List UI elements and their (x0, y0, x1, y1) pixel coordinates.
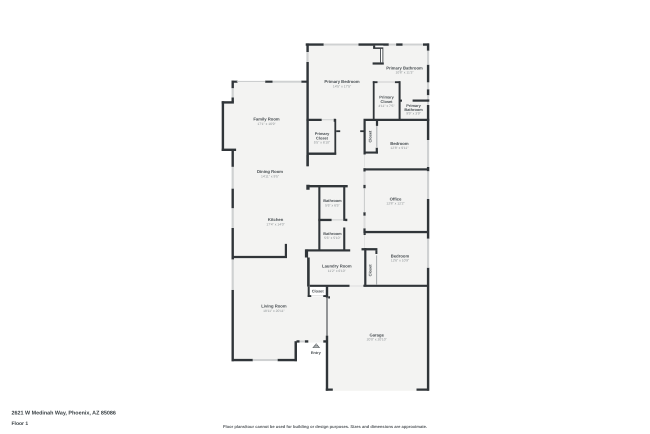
svg-text:18'11" x 20'11": 18'11" x 20'11" (263, 309, 285, 313)
svg-text:4'11" x 7'5": 4'11" x 7'5" (378, 104, 395, 108)
svg-text:2621 W Medinah Way, Phoenix, A: 2621 W Medinah Way, Phoenix, AZ 85086 (12, 410, 116, 416)
svg-text:Primary Bedroom: Primary Bedroom (324, 79, 359, 84)
svg-text:Entry: Entry (311, 350, 322, 355)
svg-text:12'8" x 9'11": 12'8" x 9'11" (390, 146, 409, 150)
svg-text:Laundry Room: Laundry Room (322, 263, 352, 268)
svg-text:5'5" x 6'10": 5'5" x 6'10" (314, 141, 331, 145)
svg-text:Floor 1: Floor 1 (12, 421, 29, 427)
svg-text:10'8" x 11'3": 10'8" x 11'3" (395, 71, 414, 75)
svg-text:11'2" x 6'10": 11'2" x 6'10" (328, 269, 347, 273)
svg-text:Living Room: Living Room (261, 303, 287, 308)
svg-text:9'9" x 3'9": 9'9" x 3'9" (406, 112, 421, 116)
svg-text:14'11" x 9'5": 14'11" x 9'5" (261, 175, 280, 179)
svg-text:Closet: Closet (367, 130, 372, 143)
svg-text:14'5" x 17'5": 14'5" x 17'5" (333, 85, 352, 89)
svg-text:5'6" x 6'5": 5'6" x 6'5" (325, 203, 340, 207)
svg-text:17'1" x 16'9": 17'1" x 16'9" (257, 122, 276, 126)
svg-text:Floor plans/tour cannot be use: Floor plans/tour cannot be used for buil… (223, 424, 427, 429)
svg-text:Family Room: Family Room (253, 117, 280, 122)
svg-text:Closet: Closet (367, 264, 372, 277)
svg-text:20'0" x 20'10": 20'0" x 20'10" (367, 338, 388, 342)
svg-text:12'8" x 12'2": 12'8" x 12'2" (386, 202, 405, 206)
svg-text:Closet: Closet (312, 288, 325, 293)
svg-text:Dining Room: Dining Room (257, 169, 283, 174)
svg-text:17'4" x 14'0": 17'4" x 14'0" (266, 222, 285, 226)
svg-text:12'6" x 10'9": 12'6" x 10'9" (391, 259, 410, 263)
svg-text:5'6" x 5'10": 5'6" x 5'10" (324, 236, 341, 240)
